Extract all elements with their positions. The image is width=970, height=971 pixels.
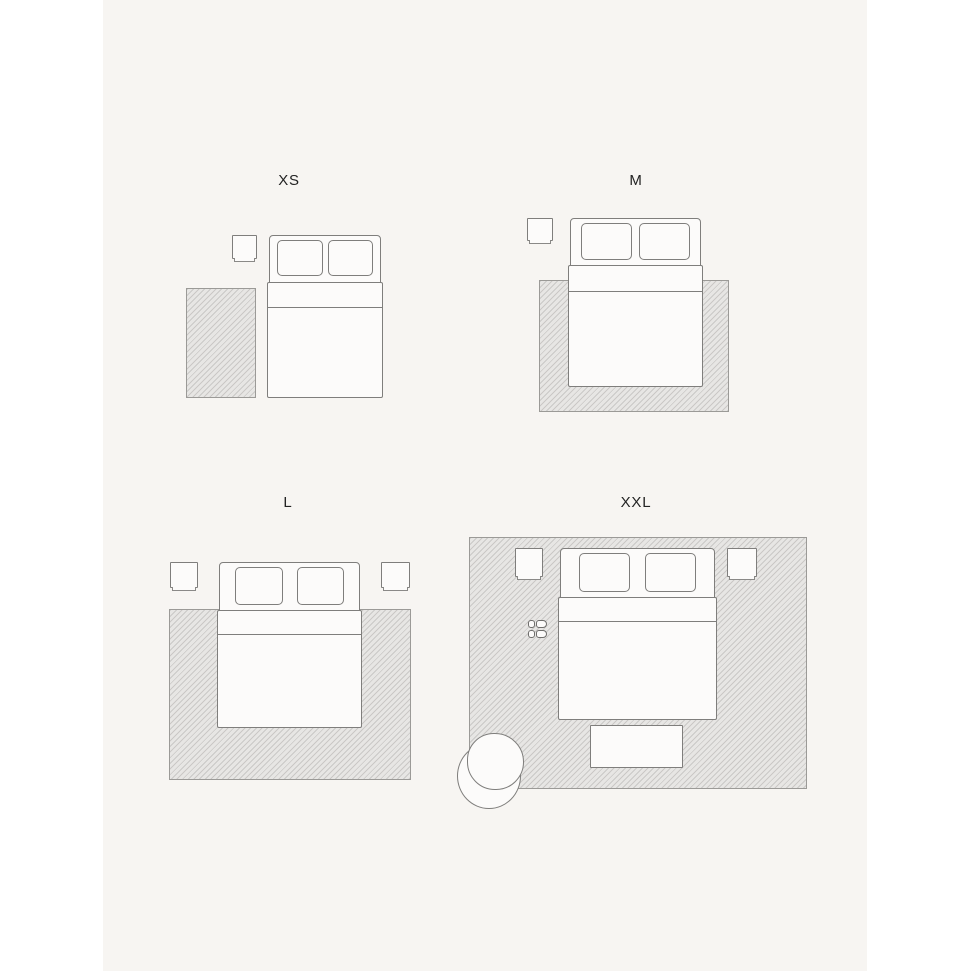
rug-icon-xs	[186, 288, 256, 398]
rug-size-guide-panel: XS M L	[103, 0, 867, 971]
bed-headboard	[570, 218, 701, 271]
nightstand-icon-right	[727, 548, 757, 577]
bed-headboard	[219, 562, 360, 616]
slipper-icon	[528, 620, 547, 628]
duvet-fold-line	[569, 291, 702, 292]
slippers-icon	[528, 620, 547, 638]
bed-duvet	[267, 282, 383, 398]
pillow-icon	[639, 223, 690, 260]
nightstand-icon-left	[515, 548, 543, 577]
double-bed-icon	[558, 548, 717, 720]
armchair-icon	[455, 731, 529, 811]
size-label-l: L	[218, 495, 358, 511]
bed-duvet	[568, 265, 703, 387]
slipper-heel	[528, 630, 535, 638]
duvet-fold-line	[268, 307, 382, 308]
bed-duvet	[217, 610, 362, 728]
pillow-icon	[645, 553, 696, 592]
double-bed-icon	[217, 562, 362, 728]
nightstand-icon-left	[170, 562, 198, 588]
pillow-icon	[235, 567, 283, 605]
double-bed-icon	[267, 235, 383, 398]
size-label-xxl: XXL	[566, 495, 706, 511]
double-bed-icon	[568, 218, 703, 387]
slipper-icon	[528, 630, 547, 638]
nightstand-icon	[232, 235, 257, 259]
slipper-foot	[536, 620, 547, 628]
pillow-icon	[297, 567, 345, 605]
size-label-xs: XS	[219, 173, 359, 189]
pillow-icon	[328, 240, 374, 276]
nightstand-icon-right	[381, 562, 410, 588]
bed-headboard	[560, 548, 715, 603]
nightstand-icon	[527, 218, 553, 241]
pillow-icon	[579, 553, 630, 592]
bench-icon	[590, 725, 683, 768]
pillow-icon	[277, 240, 323, 276]
armchair-seat	[467, 733, 524, 790]
duvet-fold-line	[218, 634, 361, 635]
pillow-icon	[581, 223, 632, 260]
slipper-foot	[536, 630, 547, 638]
bed-duvet	[558, 597, 717, 720]
slipper-heel	[528, 620, 535, 628]
duvet-fold-line	[559, 621, 716, 622]
size-label-m: M	[566, 173, 706, 189]
bed-headboard	[269, 235, 381, 288]
